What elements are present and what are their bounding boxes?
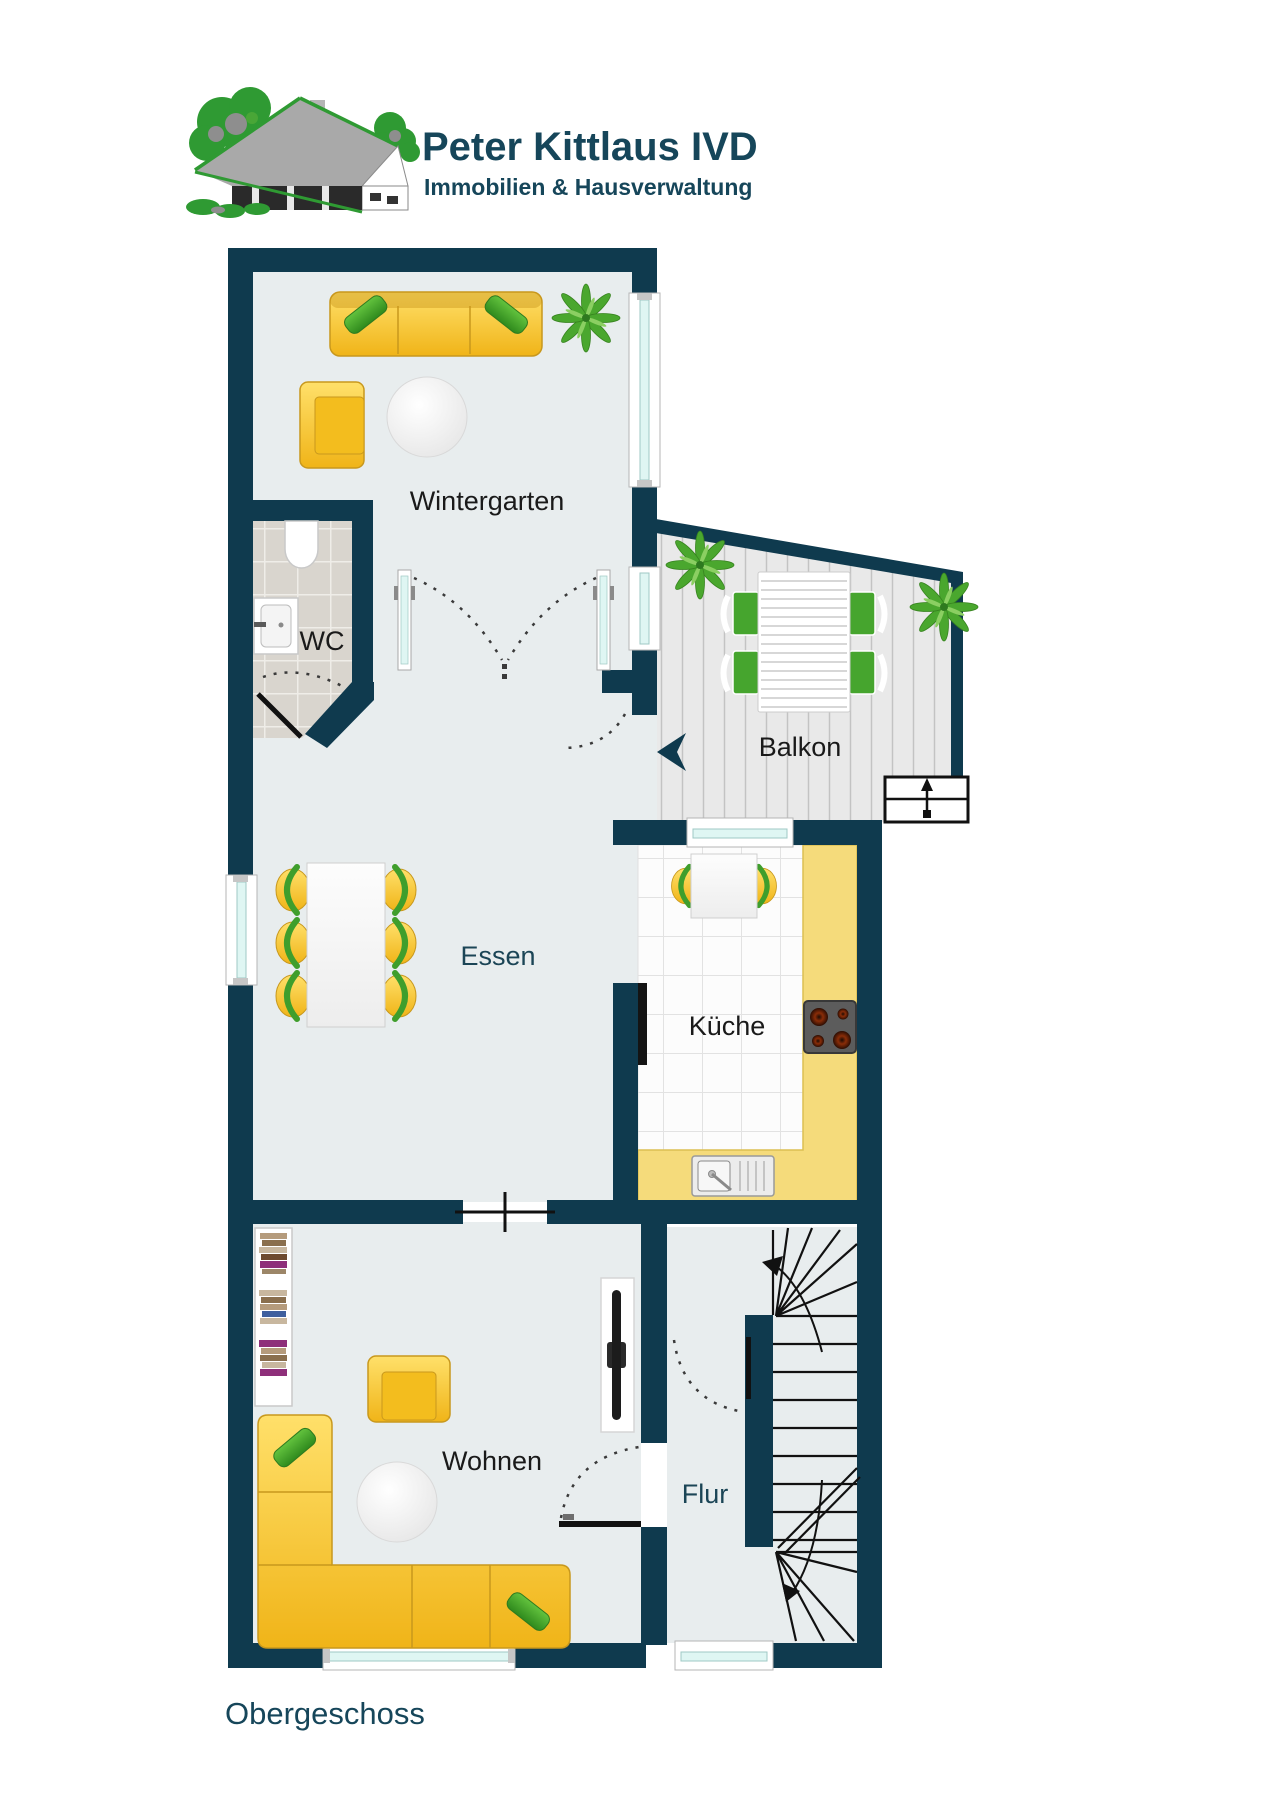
wall-mid-right (547, 1200, 882, 1224)
plant-icon (552, 284, 620, 352)
sink-icon (254, 598, 298, 654)
tv-icon (601, 1278, 634, 1432)
room-label-essen: Essen (460, 941, 535, 971)
window-essen-left (226, 875, 257, 985)
wall-wintergarten-right-1 (632, 248, 657, 293)
plant-icon (666, 531, 734, 599)
house-logo-icon (186, 87, 420, 218)
wall-kueche-top-left (613, 820, 687, 845)
room-label-wc: WC (300, 626, 345, 656)
plant-icon (910, 573, 978, 641)
room-label-flur: Flur (682, 1479, 729, 1509)
door-meeting-dot (502, 674, 507, 679)
wall-mid-left (228, 1200, 463, 1224)
flur-door-leaf (746, 1337, 751, 1399)
wall-wintergarten-right-3 (632, 650, 657, 715)
floor-plan-page: Wintergarten WC Balkon Essen Küche Wohne… (0, 0, 1280, 1811)
company-logo: Peter Kittlaus IVD Immobilien & Hausverw… (186, 87, 758, 218)
toilet-icon (285, 521, 318, 568)
kitchen-sink-icon (692, 1156, 774, 1196)
wall-wc-right (352, 500, 373, 688)
sofa-icon (330, 292, 542, 356)
armchair-icon (368, 1356, 450, 1422)
wall-kueche-left (613, 983, 638, 1202)
wohnen-door-handle (563, 1514, 574, 1520)
kitchen-doorway-floor (613, 845, 638, 985)
kitchen-table-icon (691, 854, 757, 918)
room-label-wohnen: Wohnen (442, 1446, 542, 1476)
wall-outer-top (228, 248, 657, 272)
company-name: Peter Kittlaus IVD (422, 125, 758, 169)
bookshelf-icon (255, 1228, 292, 1406)
floor-plan-drawing: Wintergarten WC Balkon Essen Küche Wohne… (0, 0, 1280, 1811)
wall-outer-right (857, 820, 882, 1668)
window-essen-balkon (629, 567, 660, 650)
dining-set (276, 863, 416, 1027)
window-kueche-balkon (687, 818, 793, 847)
window-flur-bottom (675, 1641, 773, 1670)
room-label-kueche: Küche (689, 1011, 766, 1041)
room-label-wintergarten: Wintergarten (410, 486, 565, 516)
kitchen-door-leaf (638, 983, 647, 1065)
wall-flur-left-lower (641, 1527, 667, 1645)
stove-icon (804, 1001, 856, 1053)
balcony-table-icon (758, 572, 850, 712)
exterior-steps-icon (885, 777, 968, 822)
company-tagline: Immobilien & Hausverwaltung (424, 174, 752, 200)
wall-flur-left-upper (641, 1222, 667, 1443)
door-meeting-dot (502, 664, 507, 669)
balcony-passage-floor (632, 715, 657, 822)
wohnen-door-leaf (559, 1521, 641, 1527)
wall-bottom-3 (773, 1643, 882, 1668)
floor-title: Obergeschoss (225, 1696, 425, 1731)
dining-table-icon (307, 863, 385, 1027)
room-label-balkon: Balkon (759, 732, 842, 762)
armchair-icon (300, 382, 364, 468)
window-wintergarten-right (629, 293, 660, 487)
round-table-icon (357, 1462, 437, 1542)
wall-stub (602, 670, 632, 693)
round-table-icon (387, 377, 467, 457)
